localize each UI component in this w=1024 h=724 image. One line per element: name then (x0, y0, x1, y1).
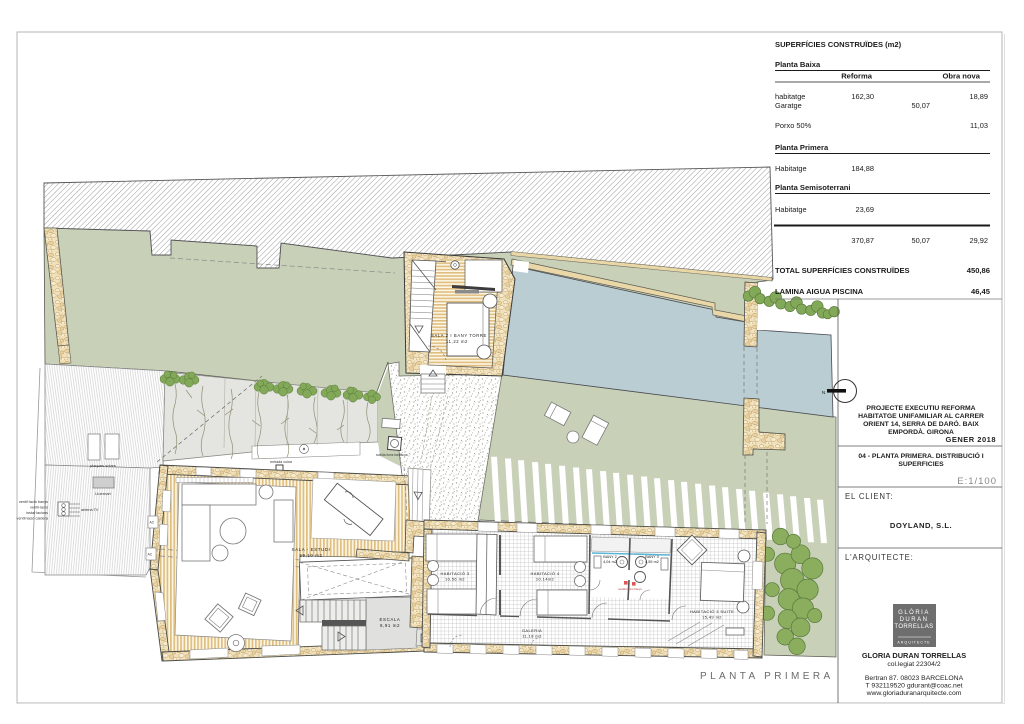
svg-text:T 932119520 gdurant@coac.net: T 932119520 gdurant@coac.net (866, 683, 963, 690)
svg-text:AC: AC (150, 521, 155, 525)
svg-text:EMPORDÀ. GIRONA: EMPORDÀ. GIRONA (888, 427, 954, 436)
svg-text:50,07: 50,07 (912, 236, 931, 245)
svg-text:HABITACIÓ 3 SUITE: HABITACIÓ 3 SUITE (690, 609, 734, 614)
svg-text:Obra nova: Obra nova (942, 72, 980, 81)
svg-text:AC: AC (148, 553, 153, 557)
svg-text:SUPERFÍCIES CONSTRUÏDES (m2): SUPERFÍCIES CONSTRUÏDES (m2) (775, 40, 902, 49)
svg-text:DOYLAND, S.L.: DOYLAND, S.L. (890, 521, 952, 530)
svg-text:TOTAL SUPERFÍCIES CONSTRUÏDES: TOTAL SUPERFÍCIES CONSTRUÏDES (775, 266, 910, 275)
svg-text:DURAN: DURAN (900, 617, 929, 623)
svg-text:plaques solars: plaques solars (90, 463, 116, 468)
svg-text:11,03: 11,03 (970, 121, 988, 130)
svg-text:Planta Baixa: Planta Baixa (775, 60, 821, 69)
svg-text:04 - PLANTA PRIMERA. DISTRIBUC: 04 - PLANTA PRIMERA. DISTRIBUCIÓ I (858, 451, 983, 460)
svg-text:ESCALA: ESCALA (380, 617, 401, 622)
svg-text:ORIENT 14, SERRA DE DARÓ. BAIX: ORIENT 14, SERRA DE DARÓ. BAIX (863, 419, 979, 428)
svg-text:450,86: 450,86 (967, 266, 990, 275)
svg-text:TORRELLAS: TORRELLAS (894, 624, 933, 630)
svg-text:Planta Semisoterrani: Planta Semisoterrani (775, 183, 851, 192)
svg-text:HABITATGE UNIFAMILIAR AL CARRE: HABITATGE UNIFAMILIAR AL CARRER (858, 413, 984, 420)
svg-text:Porxo 50%: Porxo 50% (775, 121, 812, 130)
svg-text:10,56 m2: 10,56 m2 (445, 577, 465, 582)
svg-text:habitatge: habitatge (775, 92, 805, 101)
svg-text:50,07: 50,07 (912, 101, 931, 110)
svg-text:8,91 m2: 8,91 m2 (380, 623, 400, 628)
svg-text:BANY 3: BANY 3 (645, 555, 658, 559)
svg-text:sortida fums banys: sortida fums banys (618, 587, 642, 591)
svg-text:Garatge: Garatge (775, 101, 802, 110)
svg-text:antena TV: antena TV (81, 508, 99, 512)
svg-text:ventil·lació: ventil·lació (30, 506, 48, 510)
svg-text:Lluernari: Lluernari (95, 491, 111, 496)
svg-text:46,45: 46,45 (971, 287, 991, 296)
svg-text:L'ARQUITECTE:: L'ARQUITECTE: (845, 553, 914, 562)
svg-text:162,30: 162,30 (851, 92, 874, 101)
svg-text:GLORIA DURAN TORRELLAS: GLORIA DURAN TORRELLAS (862, 651, 966, 660)
svg-text:Habitatge: Habitatge (775, 205, 807, 214)
svg-text:ARQUITECTE: ARQUITECTE (897, 641, 930, 645)
svg-text:EL CLIENT:: EL CLIENT: (845, 492, 893, 501)
svg-text:15,49 m2: 15,49 m2 (702, 615, 722, 620)
svg-text:GALERIA: GALERIA (522, 628, 542, 633)
svg-text:SUPERFICIES: SUPERFICIES (898, 461, 944, 468)
svg-text:GLÒRIA: GLÒRIA (898, 609, 930, 616)
svg-text:11,18 m2: 11,18 m2 (522, 634, 542, 639)
svg-text:BANY 2: BANY 2 (603, 555, 616, 559)
svg-text:29,92: 29,92 (970, 236, 989, 245)
svg-text:sortida fums barbacoa: sortida fums barbacoa (376, 453, 408, 457)
svg-text:PLANTA PRIMERA: PLANTA PRIMERA (700, 671, 834, 682)
svg-text:N: N (822, 390, 825, 395)
svg-text:ventil·lació caldera: ventil·lació caldera (17, 517, 49, 521)
svg-text:59,10 m2: 59,10 m2 (299, 553, 322, 558)
svg-text:184,88: 184,88 (851, 164, 874, 173)
svg-text:4,04 m2: 4,04 m2 (603, 560, 617, 564)
svg-text:entrada cuina: entrada cuina (270, 460, 292, 464)
svg-text:HABITACIÓ 3: HABITACIÓ 3 (441, 571, 470, 576)
svg-text:23,69: 23,69 (856, 205, 875, 214)
svg-text:Reforma: Reforma (841, 72, 873, 81)
svg-text:SALA 2 I BANY TORRE: SALA 2 I BANY TORRE (431, 333, 487, 338)
svg-text:10,14m2: 10,14m2 (536, 577, 555, 582)
svg-text:www.gloriaduranarquitecte.com: www.gloriaduranarquitecte.com (866, 690, 962, 697)
svg-text:ventil·lació banys: ventil·lació banys (19, 500, 48, 504)
svg-text:Planta Primera: Planta Primera (775, 143, 829, 152)
svg-text:GENER 2018: GENER 2018 (946, 435, 996, 444)
svg-text:PROJECTE EXECUTIU REFORMA: PROJECTE EXECUTIU REFORMA (866, 405, 975, 412)
svg-text:11,22 m2: 11,22 m2 (446, 339, 468, 344)
svg-text:LAMINA AIGUA PISCINA: LAMINA AIGUA PISCINA (775, 287, 864, 296)
svg-text:E:1/100: E:1/100 (957, 476, 997, 487)
svg-text:SALA - ESTUDI: SALA - ESTUDI (292, 547, 331, 552)
svg-text:instal·lacions: instal·lacions (26, 511, 48, 515)
svg-text:370,87: 370,87 (851, 236, 874, 245)
svg-text:Bertran 87. 08023 BARCELONA: Bertran 87. 08023 BARCELONA (865, 675, 964, 682)
svg-text:4,55 m2: 4,55 m2 (645, 560, 659, 564)
svg-text:col.legiat 22304/2: col.legiat 22304/2 (887, 661, 941, 668)
svg-text:18,89: 18,89 (970, 92, 989, 101)
svg-text:Habitatge: Habitatge (775, 164, 807, 173)
svg-text:HABITACIÓ 4: HABITACIÓ 4 (531, 571, 560, 576)
